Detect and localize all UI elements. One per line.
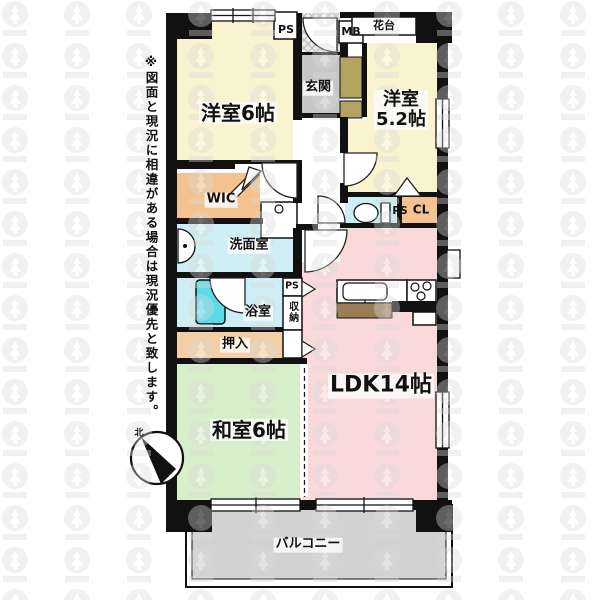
label-western52-line2: 5.2帖 — [376, 109, 426, 130]
label-wic: WIC — [205, 193, 238, 208]
label-western6: 洋室6帖 — [199, 102, 277, 124]
watermark-pattern — [0, 0, 600, 600]
disclaimer-text: ※図面と現況に相違がある場合は現況優先と致します。 — [144, 54, 157, 419]
label-cl: CL — [411, 203, 431, 216]
compass-north-label: 北 — [134, 426, 143, 439]
label-ps-top: PS — [276, 24, 296, 36]
label-hanadai: 花台 — [371, 20, 397, 32]
label-mb: MB — [339, 26, 362, 38]
label-genkan: 玄関 — [303, 81, 333, 96]
label-balcony: バルコニー — [274, 538, 343, 553]
floorplan-drawing — [0, 0, 600, 600]
label-japanese6: 和室6帖 — [210, 419, 288, 441]
label-oshiire: 押入 — [220, 338, 250, 353]
label-western52-line1: 洋室 — [383, 89, 419, 110]
label-ldk: LDK14帖 — [328, 374, 434, 399]
label-ps-kitchen: PS — [283, 282, 301, 293]
label-ps-toilet: PS — [390, 206, 409, 218]
label-bathroom: 浴室 — [243, 306, 273, 321]
label-washroom: 洗面室 — [227, 239, 270, 254]
floorplan-canvas: ※図面と現況に相違がある場合は現況優先と致します。 北 PS MB 花台 玄関 … — [0, 0, 600, 600]
label-western52: 洋室5.2帖 — [374, 90, 428, 130]
label-shunou: 収納 — [284, 301, 299, 323]
